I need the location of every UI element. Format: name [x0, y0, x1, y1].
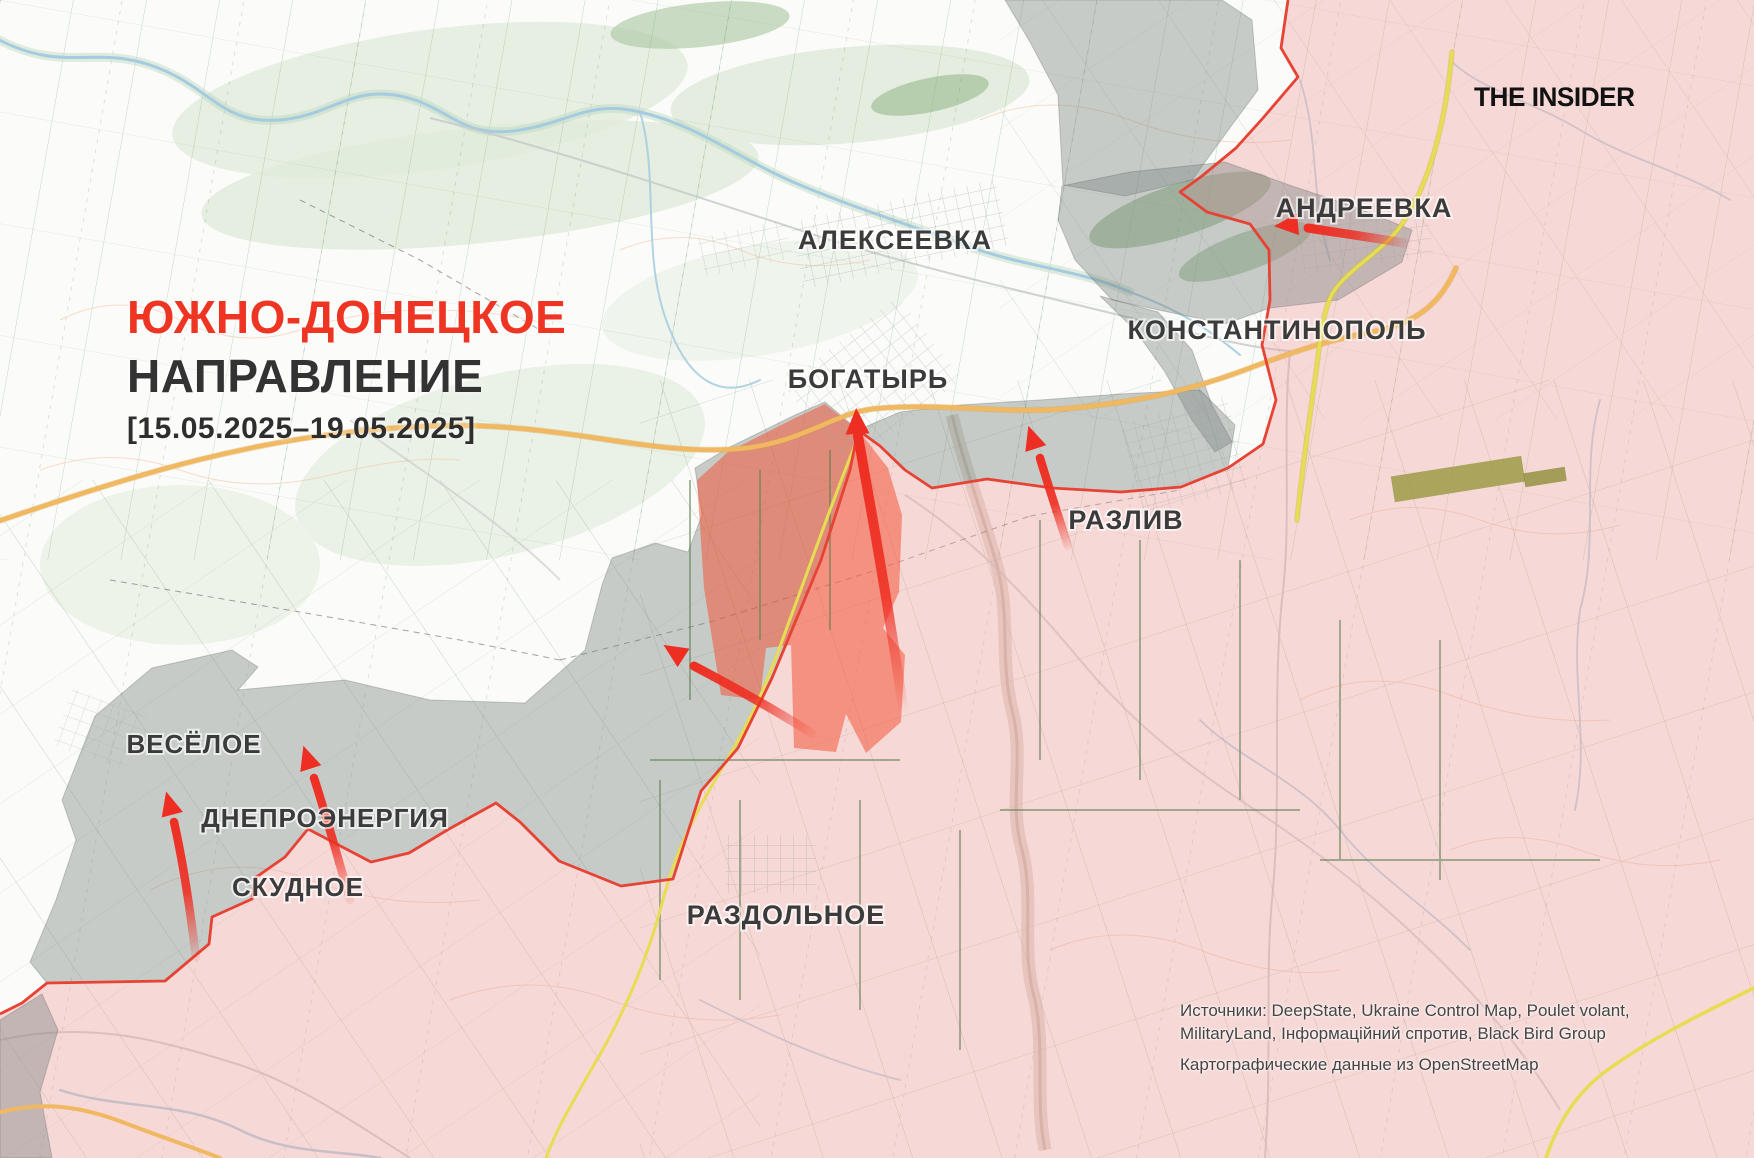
town-label-skudnoe: СКУДНОЕ — [232, 872, 364, 902]
town-label-alekseevka: АЛЕКСЕЕВКА — [798, 225, 992, 255]
page-title-subtitle: НАПРАВЛЕНИЕ — [127, 353, 566, 399]
town-label-razdolnoe: РАЗДОЛЬНОЕ — [687, 900, 885, 930]
page-title-direction: ЮЖНО-ДОНЕЦКОЕ — [127, 294, 566, 340]
town-label-andreevka: АНДРЕЕВКА — [1276, 193, 1453, 223]
town-label-konstantinopol: КОНСТАНТИНОПОЛЬ — [1127, 315, 1426, 345]
the-insider-logo: THE INSIDER — [1474, 82, 1635, 113]
map-canvas: АЛЕКСЕЕВКА АНДРЕЕВКА КОНСТАНТИНОПОЛЬ БОГ… — [0, 0, 1754, 1158]
date-range: [15.05.2025–19.05.2025] — [127, 414, 566, 444]
attribution: Источники: DeepState, Ukraine Control Ma… — [1180, 1000, 1630, 1077]
sources-line-1: Источники: DeepState, Ukraine Control Ma… — [1180, 1000, 1630, 1023]
town-label-razliv: РАЗЛИВ — [1068, 505, 1183, 535]
sources-line-2: MilitaryLand, Інформаційний спротив, Bla… — [1180, 1023, 1630, 1046]
town-label-dneproenergia: ДНЕПРОЭНЕРГИЯ — [201, 803, 449, 833]
town-label-veseloe: ВЕСЁЛОЕ — [126, 729, 261, 759]
cartography-credit: Картографические данные из OpenStreetMap — [1180, 1054, 1630, 1077]
town-grid-razdolnoe — [726, 835, 816, 893]
title-block: ЮЖНО-ДОНЕЦКОЕ НАПРАВЛЕНИЕ [15.05.2025–19… — [127, 294, 566, 444]
town-label-bogatyr: БОГАТЫРЬ — [788, 364, 949, 394]
